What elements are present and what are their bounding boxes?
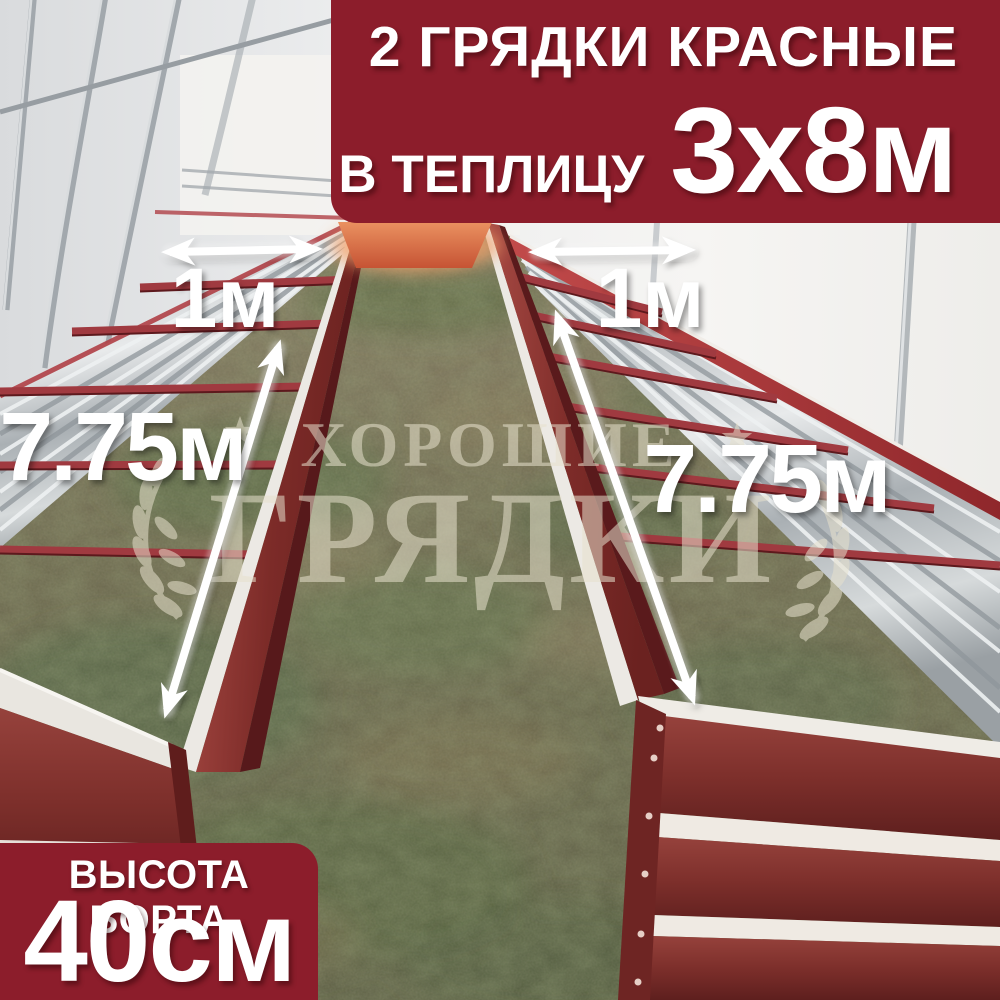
product-banner-size-row: В ТЕПЛИЦУ 3х8м bbox=[338, 89, 956, 211]
left-bed-width-label: 1м bbox=[150, 256, 300, 340]
product-banner-title: 2 ГРЯДКИ КРАСНЫЕ bbox=[369, 14, 958, 80]
right-bed-length-label: 7.75м bbox=[630, 430, 902, 527]
product-banner: 2 ГРЯДКИ КРАСНЫЕ В ТЕПЛИЦУ 3х8м bbox=[331, 0, 1000, 223]
height-banner: ВЫСОТА БОРТА 40см bbox=[0, 843, 318, 1000]
right-bed-near-end bbox=[618, 696, 1000, 1000]
product-photo-card: ХОРОШИЕ ГРЯДКИ bbox=[0, 0, 1000, 1000]
left-bed-length-label: 7.75м bbox=[0, 398, 258, 495]
height-banner-value: 40см bbox=[0, 883, 318, 999]
product-banner-size-label: В ТЕПЛИЦУ bbox=[338, 144, 644, 205]
right-bed-width-label: 1м bbox=[575, 256, 725, 340]
product-banner-size-value: 3х8м bbox=[670, 89, 956, 211]
far-end-bridge bbox=[330, 220, 500, 272]
